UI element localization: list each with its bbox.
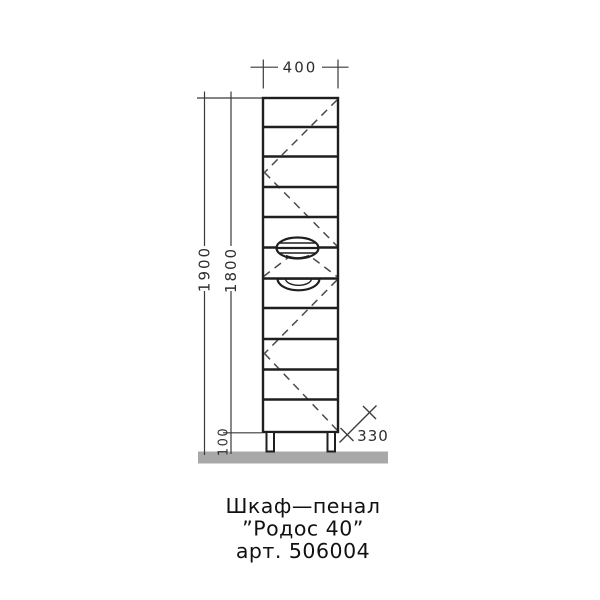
width-dimension-label: 400 (283, 59, 318, 77)
right-leg (328, 432, 336, 452)
caption: Шкаф—пенал ”Родос 40” арт. 506004 (226, 494, 381, 563)
drawing-sheet: 400 1900 1800 100 (0, 0, 600, 600)
legs (267, 432, 336, 452)
dimension-width: 400 (251, 59, 349, 89)
left-leg (267, 432, 275, 452)
cabinet-body (263, 98, 338, 432)
product-name: Шкаф—пенал (226, 494, 381, 518)
height-total-dimension-label: 1900 (196, 246, 214, 292)
dimension-height-body: 1800 (222, 92, 262, 455)
plinth-dimension-label: 100 (217, 427, 232, 456)
dimension-depth: 330 (340, 406, 389, 446)
height-body-dimension-label: 1800 (222, 247, 240, 293)
oval-handle (277, 238, 319, 259)
dimension-plinth: 100 (217, 427, 232, 456)
technical-drawing: 400 1900 1800 100 (0, 0, 600, 600)
product-article: арт. 506004 (236, 539, 370, 563)
product-model: ”Родос 40” (242, 517, 364, 541)
depth-dimension-label: 330 (357, 427, 389, 445)
